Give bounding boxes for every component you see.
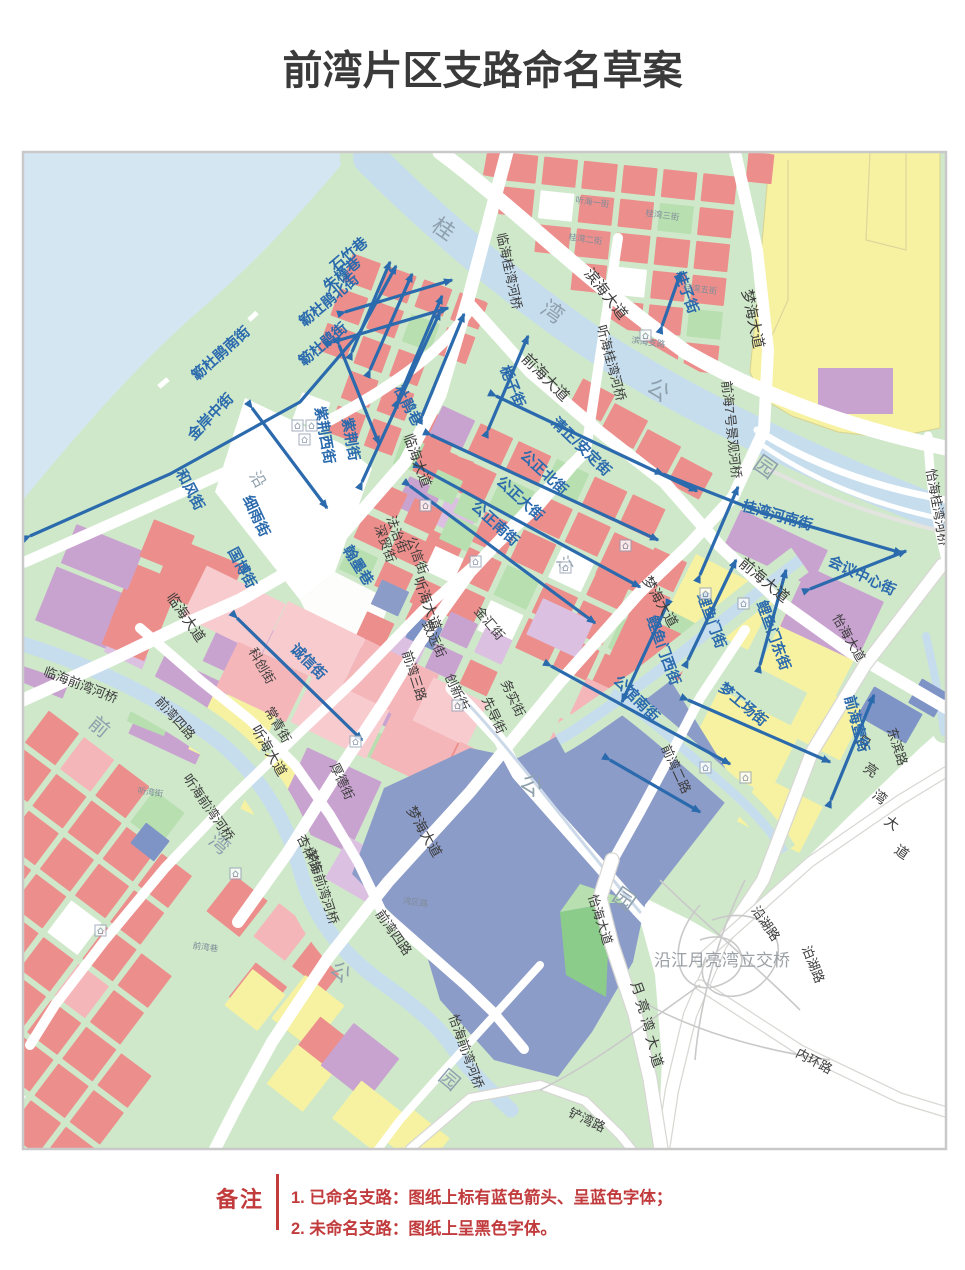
svg-text:沿江月亮湾立交桥: 沿江月亮湾立交桥 <box>654 951 790 970</box>
